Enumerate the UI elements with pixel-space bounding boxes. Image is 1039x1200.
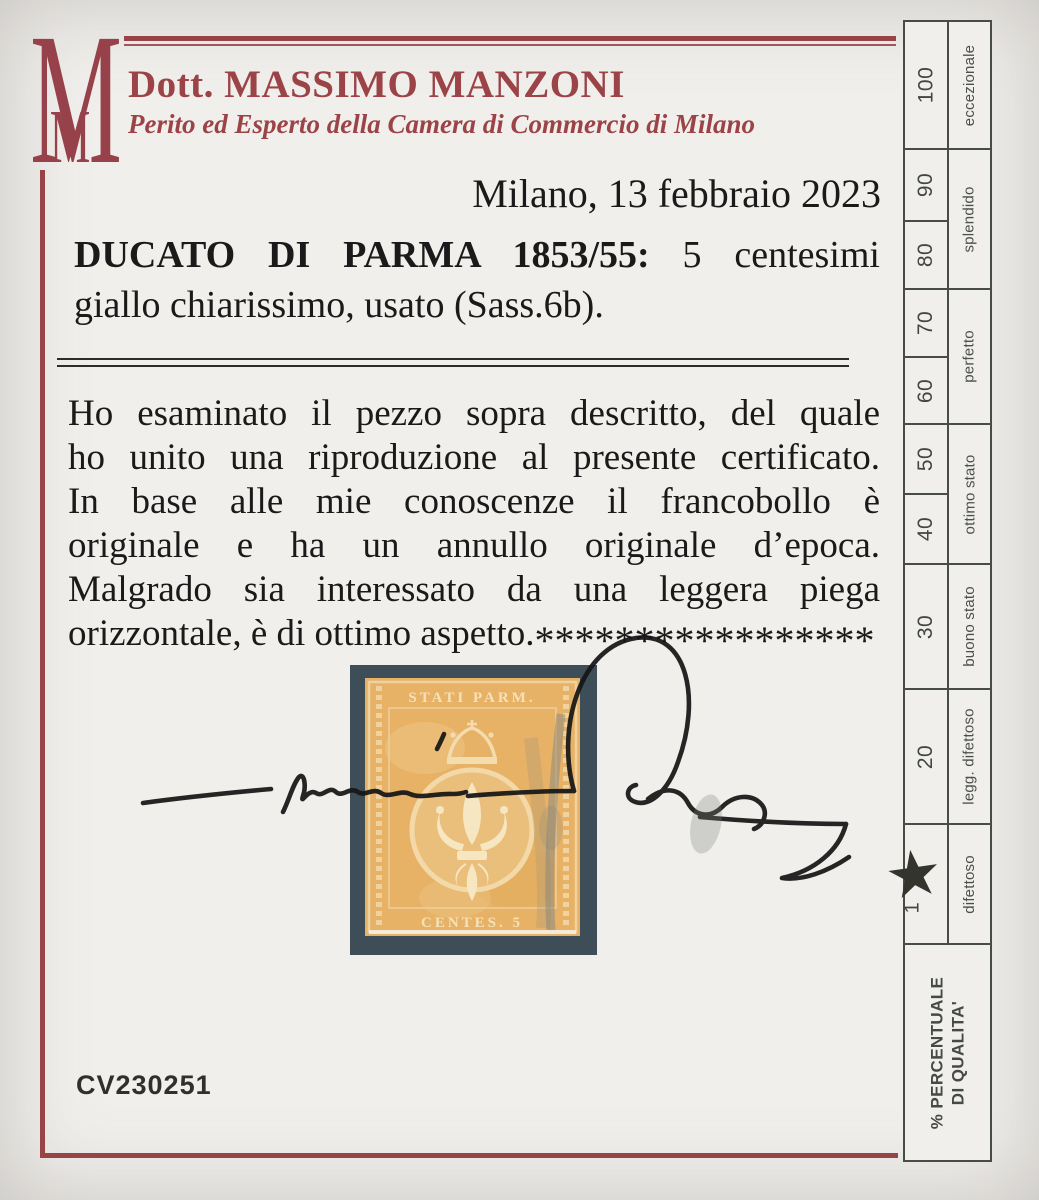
scale-footer-line2: DI QUALITA' — [948, 976, 969, 1129]
expert-subtitle: Perito ed Esperto della Camera di Commer… — [128, 108, 755, 140]
mm-monogram-logo: M M — [26, 16, 126, 166]
lot-description: DUCATO DI PARMA 1853/55: 5 centesimi gia… — [74, 230, 880, 330]
scale-value-40: 40 — [905, 495, 949, 565]
header-rule-thin — [124, 44, 896, 46]
quality-scale-table: 100 90 80 70 60 50 40 30 20 1 ★ eccezion… — [903, 20, 992, 1162]
scale-value-90: 90 — [905, 150, 949, 222]
logo-letter-small: M — [50, 94, 91, 166]
frame-left-rule — [40, 170, 45, 1158]
scale-footer-line1: % PERCENTUALE — [927, 976, 948, 1129]
expertise-text: Ho esaminato il pezzo sopra descritto, d… — [68, 392, 880, 663]
lot-description-line1: DUCATO DI PARMA 1853/55: 5 centesimi — [74, 230, 880, 280]
scale-label-difettoso: difettoso — [949, 825, 990, 945]
expertise-line: ho unito una riproduzione al presente ce… — [68, 436, 880, 480]
stamp-art: STATI PARM. — [365, 678, 580, 936]
certificate-page: M M Dott. MASSIMO MANZONI Perito ed Espe… — [0, 0, 1039, 1200]
scale-label-eccezionale: eccezionale — [949, 22, 990, 150]
lot-description-line2: giallo chiarissimo, usato (Sass.6b). — [74, 280, 880, 330]
scale-value-80: 80 — [905, 222, 949, 290]
scale-value-10-star: 1 ★ — [905, 825, 949, 945]
section-divider — [57, 358, 849, 367]
stamp-mount-card: STATI PARM. — [350, 665, 597, 955]
scale-label-perfetto: perfetto — [949, 290, 990, 425]
expertise-line-last: orizzontale, è di ottimo aspetto.*******… — [68, 612, 880, 663]
lot-title-bold: DUCATO DI PARMA 1853/55: — [74, 234, 650, 276]
frame-bottom-rule — [40, 1153, 898, 1158]
expertise-line: In base alle mie conoscenze il francobol… — [68, 480, 880, 524]
scale-value-50: 50 — [905, 425, 949, 495]
expertise-line: Ho esaminato il pezzo sopra descritto, d… — [68, 392, 880, 436]
lot-title-rest: 5 centesimi — [683, 234, 880, 276]
scale-value-60: 60 — [905, 358, 949, 425]
scale-label-buono-stato: buono stato — [949, 565, 990, 690]
scale-label-legg-difettoso: legg. difettoso — [949, 690, 990, 825]
scale-label-splendido: splendido — [949, 150, 990, 290]
certificate-number: CV230251 — [76, 1070, 212, 1101]
scale-value-100: 100 — [905, 22, 949, 150]
postmark-smudge — [685, 792, 727, 857]
stamp-image: STATI PARM. — [365, 678, 580, 936]
expertise-line: originale e ha un annullo originale d’ep… — [68, 524, 880, 568]
stamp-inscription-bottom: CENTES. 5 — [421, 915, 523, 931]
header-rule — [124, 36, 896, 41]
star-icon: ★ — [881, 839, 947, 910]
scale-value-70: 70 — [905, 290, 949, 358]
scale-value-20: 20 — [905, 690, 949, 825]
expert-name: Dott. MASSIMO MANZONI — [128, 62, 625, 108]
scale-value-30: 30 — [905, 565, 949, 690]
expertise-line: Malgrado sia interessato da una leggera … — [68, 568, 880, 612]
scale-footer: % PERCENTUALE DI QUALITA' — [905, 945, 990, 1160]
scale-label-ottimo-stato: ottimo stato — [949, 425, 990, 565]
stamp-inscription-top: STATI PARM. — [408, 690, 535, 706]
filler-asterisks: ***************** — [534, 618, 874, 663]
date-line: Milano, 13 febbraio 2023 — [472, 172, 881, 216]
